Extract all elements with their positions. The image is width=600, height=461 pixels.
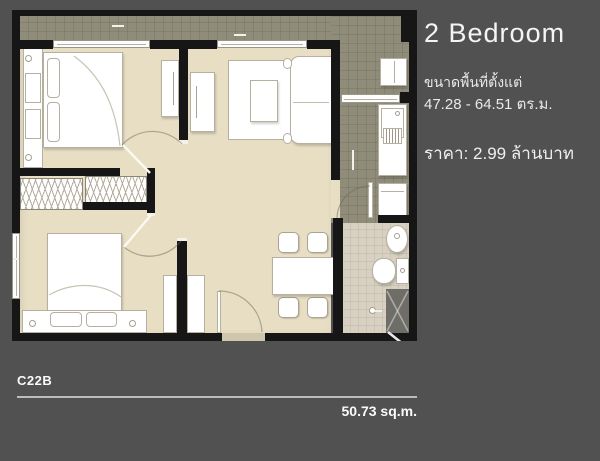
plan-area-text: 50.73 sq.m. — [217, 403, 417, 419]
footer-divider — [17, 396, 417, 398]
area-range-label: ขนาดพื้นที่ตั้งแต่ — [424, 72, 522, 94]
unit-code: C22B — [17, 373, 52, 388]
area-range-value: 47.28 - 64.51 ตร.ม. — [424, 92, 553, 116]
floor-plan-card: 2 Bedroom ขนาดพื้นที่ตั้งแต่ 47.28 - 64.… — [0, 0, 600, 461]
floor-plan — [12, 10, 417, 341]
unit-title: 2 Bedroom — [424, 18, 565, 49]
price-text: ราคา: 2.99 ล้านบาท — [424, 140, 574, 167]
plan-linework — [12, 10, 417, 341]
